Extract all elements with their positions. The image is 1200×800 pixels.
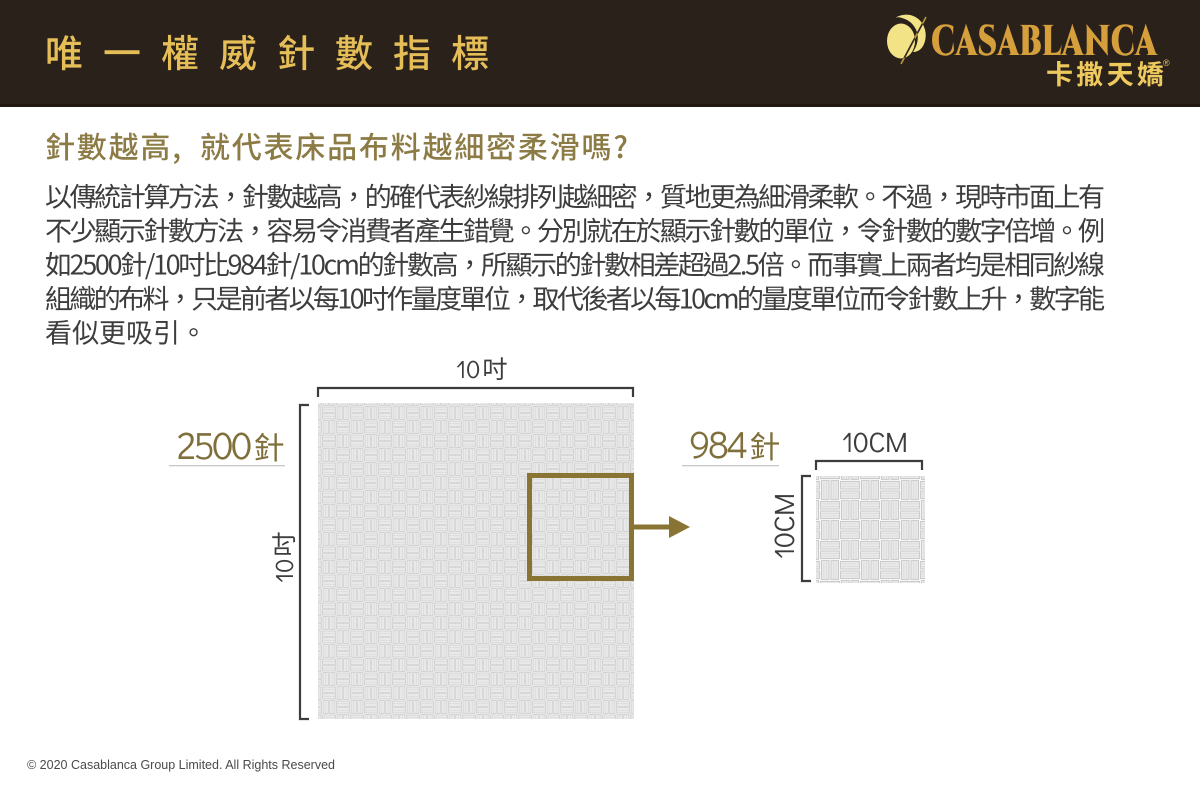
svg-text:© 2020 Casablanca Group Limit: © 2020 Casablanca Group Limited. All Rig… bbox=[27, 758, 335, 772]
svg-text:®: ® bbox=[1163, 58, 1170, 68]
